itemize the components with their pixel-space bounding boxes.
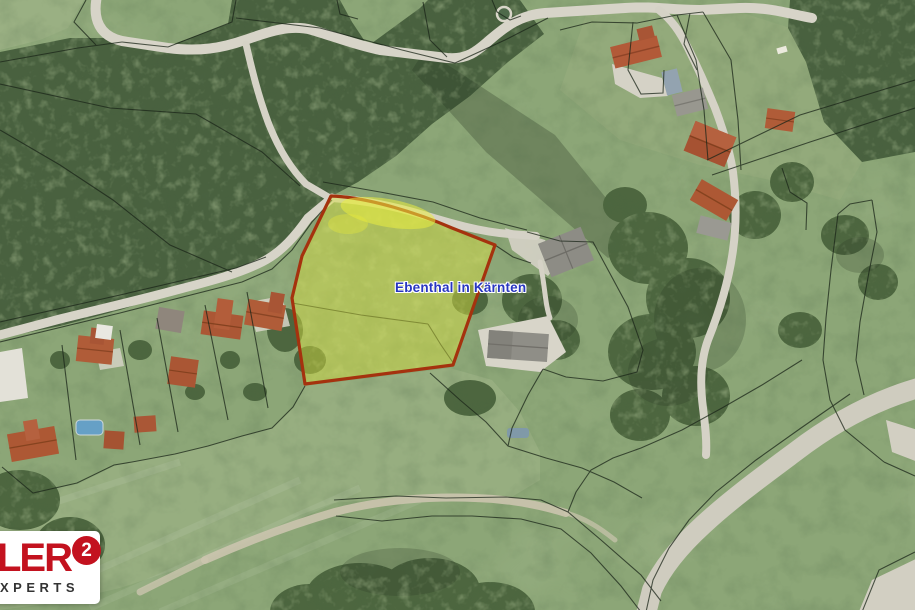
place-label: Ebenthal in Kärnten: [395, 280, 526, 295]
watermark-logo: LER 2 XPERTS: [0, 531, 100, 604]
logo-brand-text: LER: [0, 539, 71, 577]
logo-brand-row: LER 2: [0, 531, 100, 577]
aerial-map: Ebenthal in Kärnten LER 2 XPERTS: [0, 0, 915, 610]
logo-tagline-text: XPERTS: [0, 580, 100, 595]
map-canvas: [0, 0, 915, 610]
swimming-pool: [76, 420, 103, 435]
logo-superscript-badge: 2: [72, 536, 101, 565]
